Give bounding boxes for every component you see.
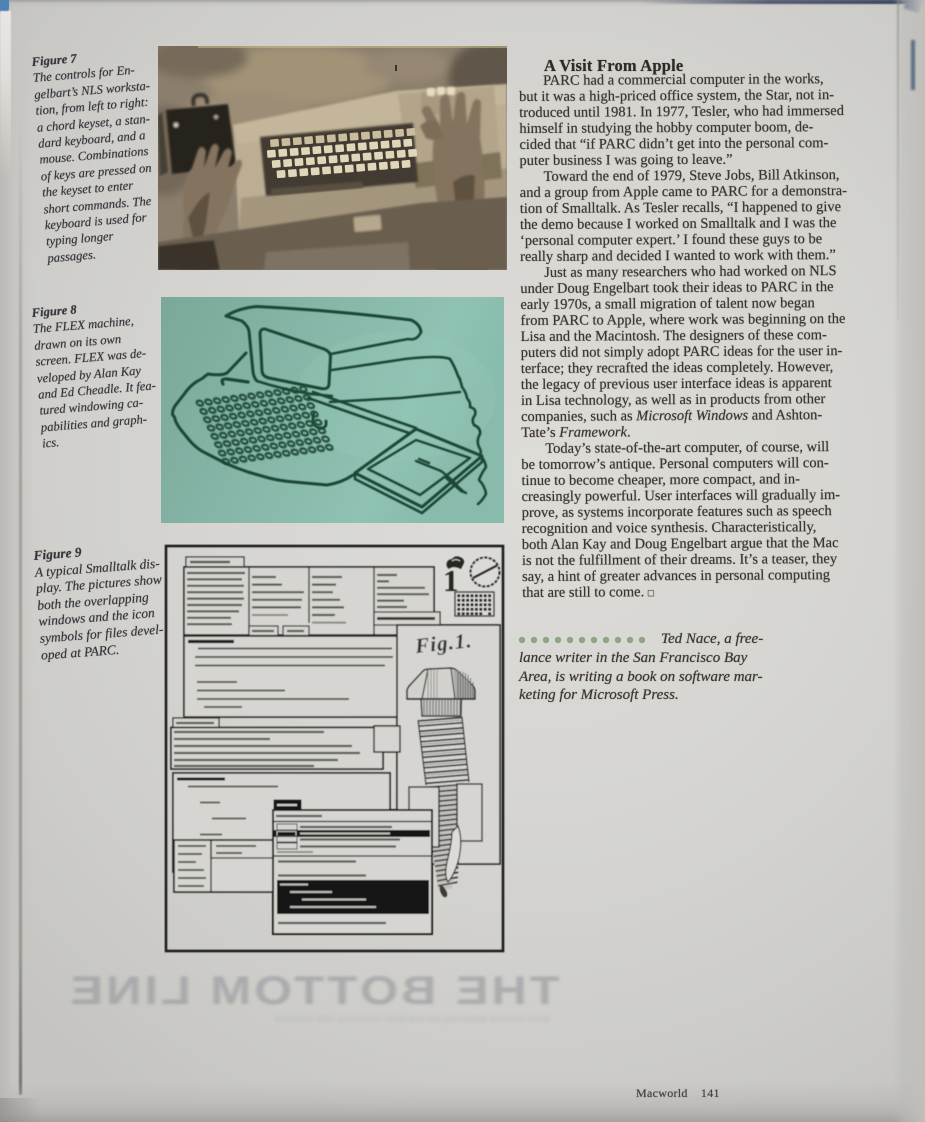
svg-text:1: 1 xyxy=(443,563,459,598)
